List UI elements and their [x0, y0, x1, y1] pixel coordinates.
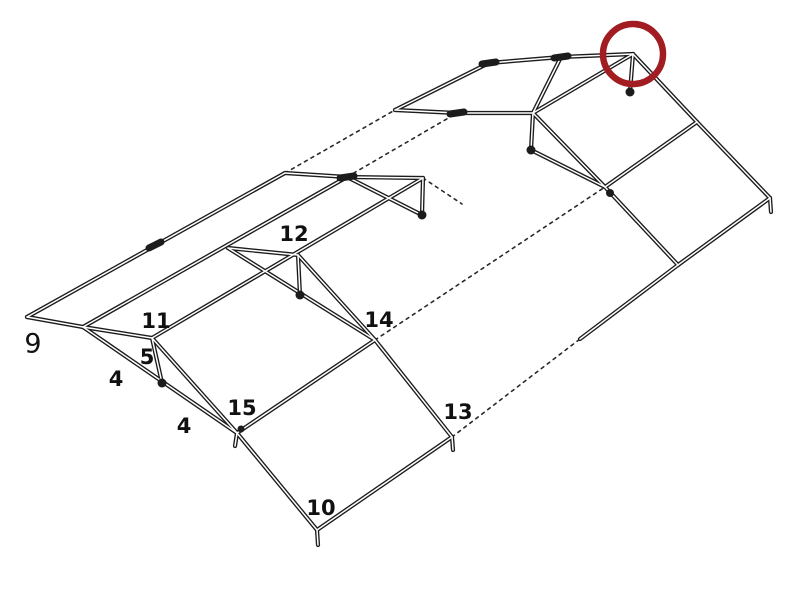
frame-pole-core — [605, 187, 678, 265]
joint-dot — [418, 211, 427, 220]
assembly-guide-dashed-line — [423, 178, 462, 204]
assembly-guide-dashed-line — [347, 113, 457, 177]
part-label-10: 10 — [306, 496, 335, 520]
frame-pole-core — [770, 198, 771, 212]
pole-coupling-sleeve — [450, 112, 464, 114]
frame-pole-core — [83, 177, 347, 327]
frame-diagram-canvas: 9115441512141310 — [0, 0, 800, 600]
part-label-14: 14 — [364, 308, 393, 332]
part-label-13: 13 — [443, 400, 472, 424]
joint-dot — [296, 291, 305, 300]
joint-dot — [606, 189, 614, 197]
part-label-11: 11 — [141, 309, 170, 333]
frame-pole-core — [347, 177, 422, 215]
part-label-15: 15 — [227, 396, 256, 420]
pole-coupling-sleeve — [340, 176, 354, 178]
frame-pole-core — [633, 54, 697, 122]
frame-pole-core — [531, 150, 605, 187]
joint-dot — [626, 88, 635, 97]
frame-pole-core — [697, 122, 770, 198]
frame-pole-core — [237, 433, 317, 530]
frame-pole-core — [678, 198, 770, 265]
pole-coupling-sleeve — [554, 56, 568, 58]
frame-pole-core — [317, 530, 318, 545]
part-label-9: 9 — [24, 329, 41, 360]
frame-pole-core — [422, 178, 423, 215]
frame-pole-core — [317, 437, 452, 530]
pole-coupling-sleeve — [482, 62, 496, 64]
part-label-4: 4 — [177, 414, 192, 438]
joint-dot — [238, 426, 245, 433]
tent-frame-assembly-diagram: 9115441512141310 — [0, 0, 800, 600]
assembly-guide-dashed-line — [285, 110, 395, 173]
frame-pole-core — [27, 317, 83, 327]
frame-pole-core — [237, 340, 375, 433]
frame-pole-core — [533, 113, 605, 187]
part-label-12: 12 — [279, 222, 308, 246]
joint-dot — [527, 146, 536, 155]
part-label-5: 5 — [140, 345, 155, 369]
frame-pole-core — [580, 265, 678, 339]
pole-coupling-sleeve — [149, 242, 161, 248]
frame-pole-core — [605, 122, 697, 187]
frame-pole-core — [395, 63, 489, 110]
joint-dot — [158, 379, 167, 388]
frame-pole-core — [375, 340, 452, 437]
part-label-4: 4 — [109, 367, 124, 391]
frame-pole-core — [347, 177, 423, 178]
frame-pole-core — [452, 437, 453, 450]
